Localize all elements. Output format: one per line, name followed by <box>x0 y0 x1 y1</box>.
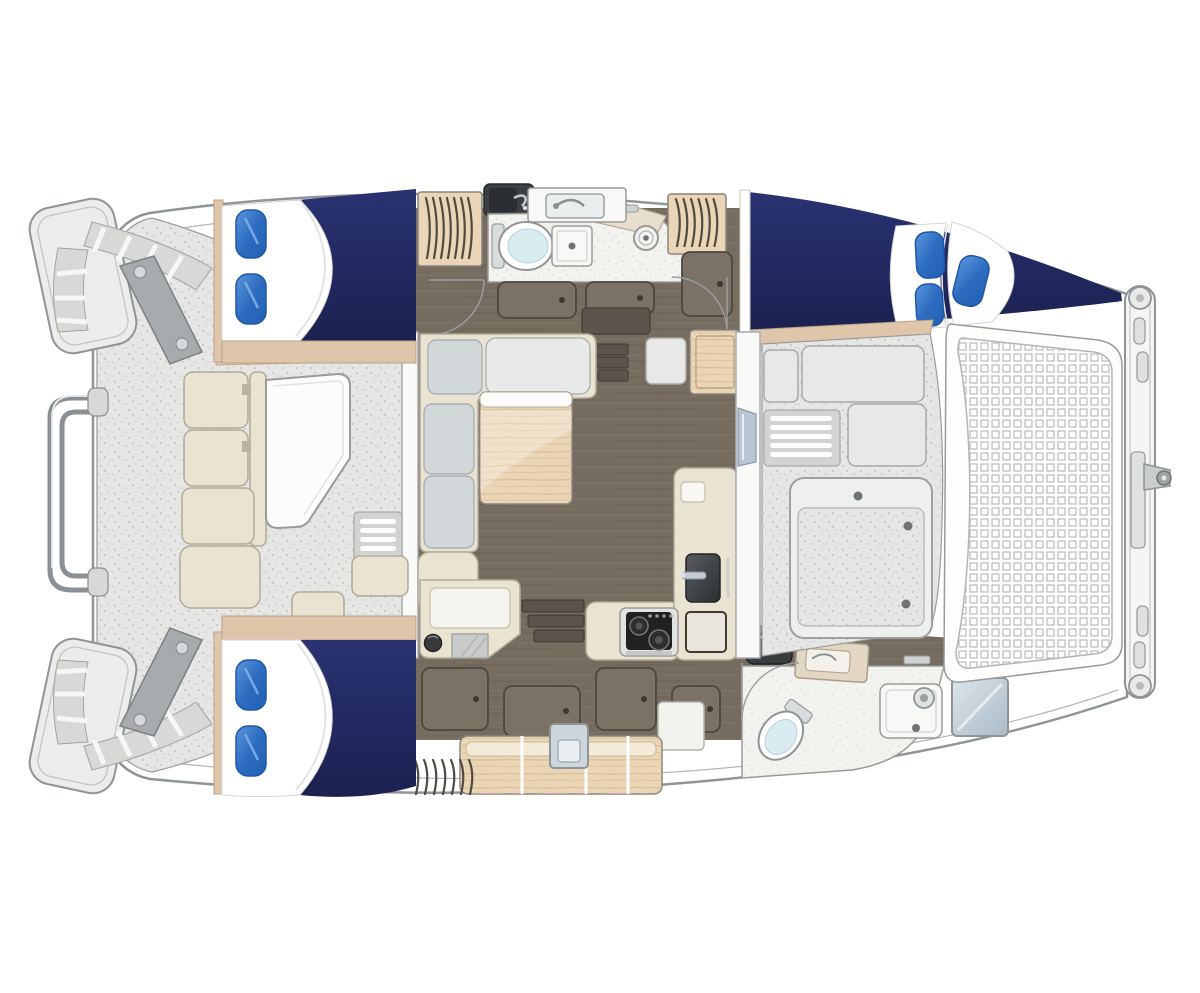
trampoline <box>944 324 1122 682</box>
settee-cushion <box>486 338 590 394</box>
side-table <box>582 308 650 334</box>
pillow <box>236 726 266 776</box>
trampoline-mesh <box>956 338 1112 668</box>
headboard-shelf <box>222 616 416 640</box>
cleat <box>1137 606 1148 636</box>
stool <box>425 635 442 652</box>
bench-cushion <box>180 546 260 608</box>
foredeck-vent-louver <box>764 410 840 466</box>
anchor-roller <box>1144 464 1171 490</box>
bench-cushion <box>184 430 248 486</box>
cooktop <box>620 608 678 656</box>
settee-cushion <box>428 340 482 394</box>
bench-cushion <box>182 488 254 544</box>
cleat <box>1134 318 1145 344</box>
foredeck <box>762 334 943 656</box>
louver-cabinet-port-fwd <box>668 194 726 254</box>
cockpit-bulkhead-wall <box>402 332 418 658</box>
bench-cushion <box>184 372 248 428</box>
settee-cushion <box>424 404 474 474</box>
cleat <box>1134 642 1145 668</box>
louver-cabinet-port-aft <box>418 192 482 266</box>
floor-plan-canvas <box>0 0 1200 993</box>
settee-cushion <box>424 476 474 548</box>
bowsprit-plate <box>1131 452 1145 548</box>
pillow <box>236 274 266 324</box>
foredeck-hatch <box>790 478 932 638</box>
galley-top-appliance <box>484 184 534 216</box>
saloon-cabinet-fwd <box>646 330 740 394</box>
bow-crossbeam <box>1125 286 1171 698</box>
aft-cabin-port-bed <box>214 189 416 363</box>
forward-bulkhead <box>736 332 760 658</box>
headboard-shelf <box>222 341 416 363</box>
starboard-hatch-box <box>658 702 704 750</box>
pillow <box>915 231 945 278</box>
pillow <box>236 660 266 710</box>
aft-cabin-starboard-bed <box>214 616 416 797</box>
saloon-table <box>480 392 572 504</box>
cleat <box>1137 352 1148 382</box>
forward-window <box>738 408 756 466</box>
starboard-sink-box <box>550 724 588 768</box>
galley-sink-2 <box>686 612 726 652</box>
pillow <box>236 210 266 258</box>
